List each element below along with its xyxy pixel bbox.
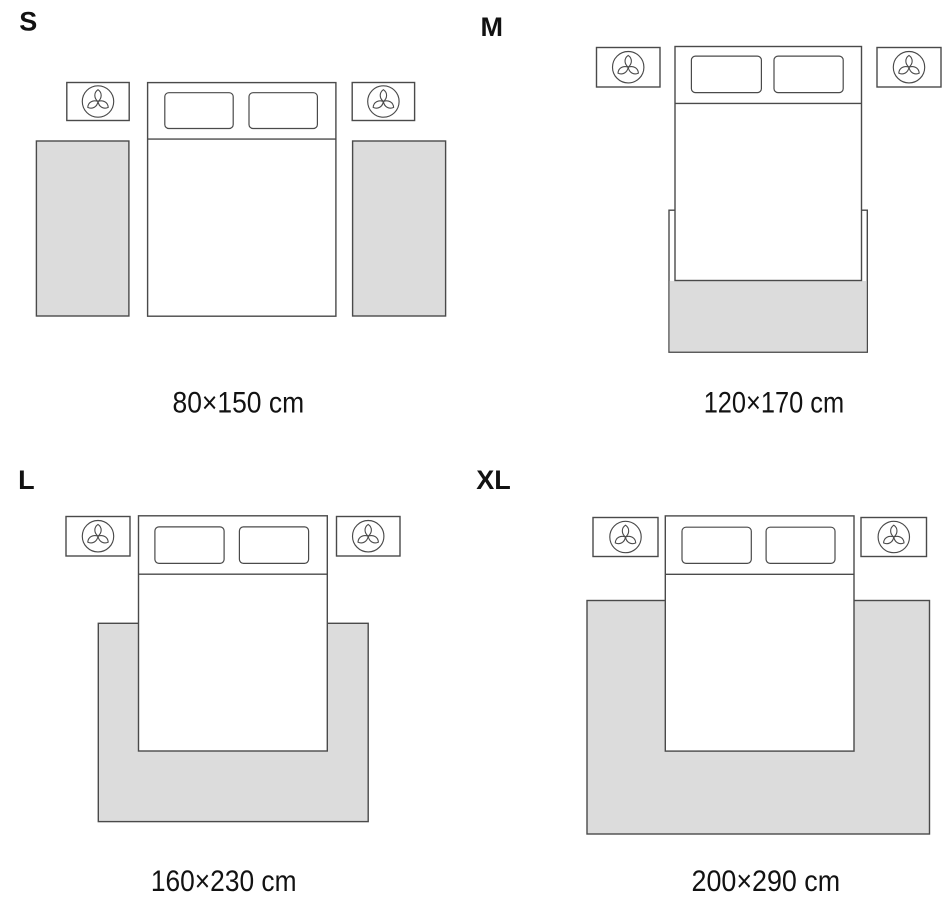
svg-text:120×170 cm: 120×170 cm xyxy=(704,386,844,419)
svg-text:160×230 cm: 160×230 cm xyxy=(151,865,297,898)
svg-text:80×150 cm: 80×150 cm xyxy=(173,386,305,419)
svg-text:S: S xyxy=(19,6,37,36)
svg-text:200×290 cm: 200×290 cm xyxy=(692,865,841,898)
svg-text:XL: XL xyxy=(476,465,511,495)
svg-text:M: M xyxy=(481,12,504,42)
svg-text:L: L xyxy=(18,465,34,495)
